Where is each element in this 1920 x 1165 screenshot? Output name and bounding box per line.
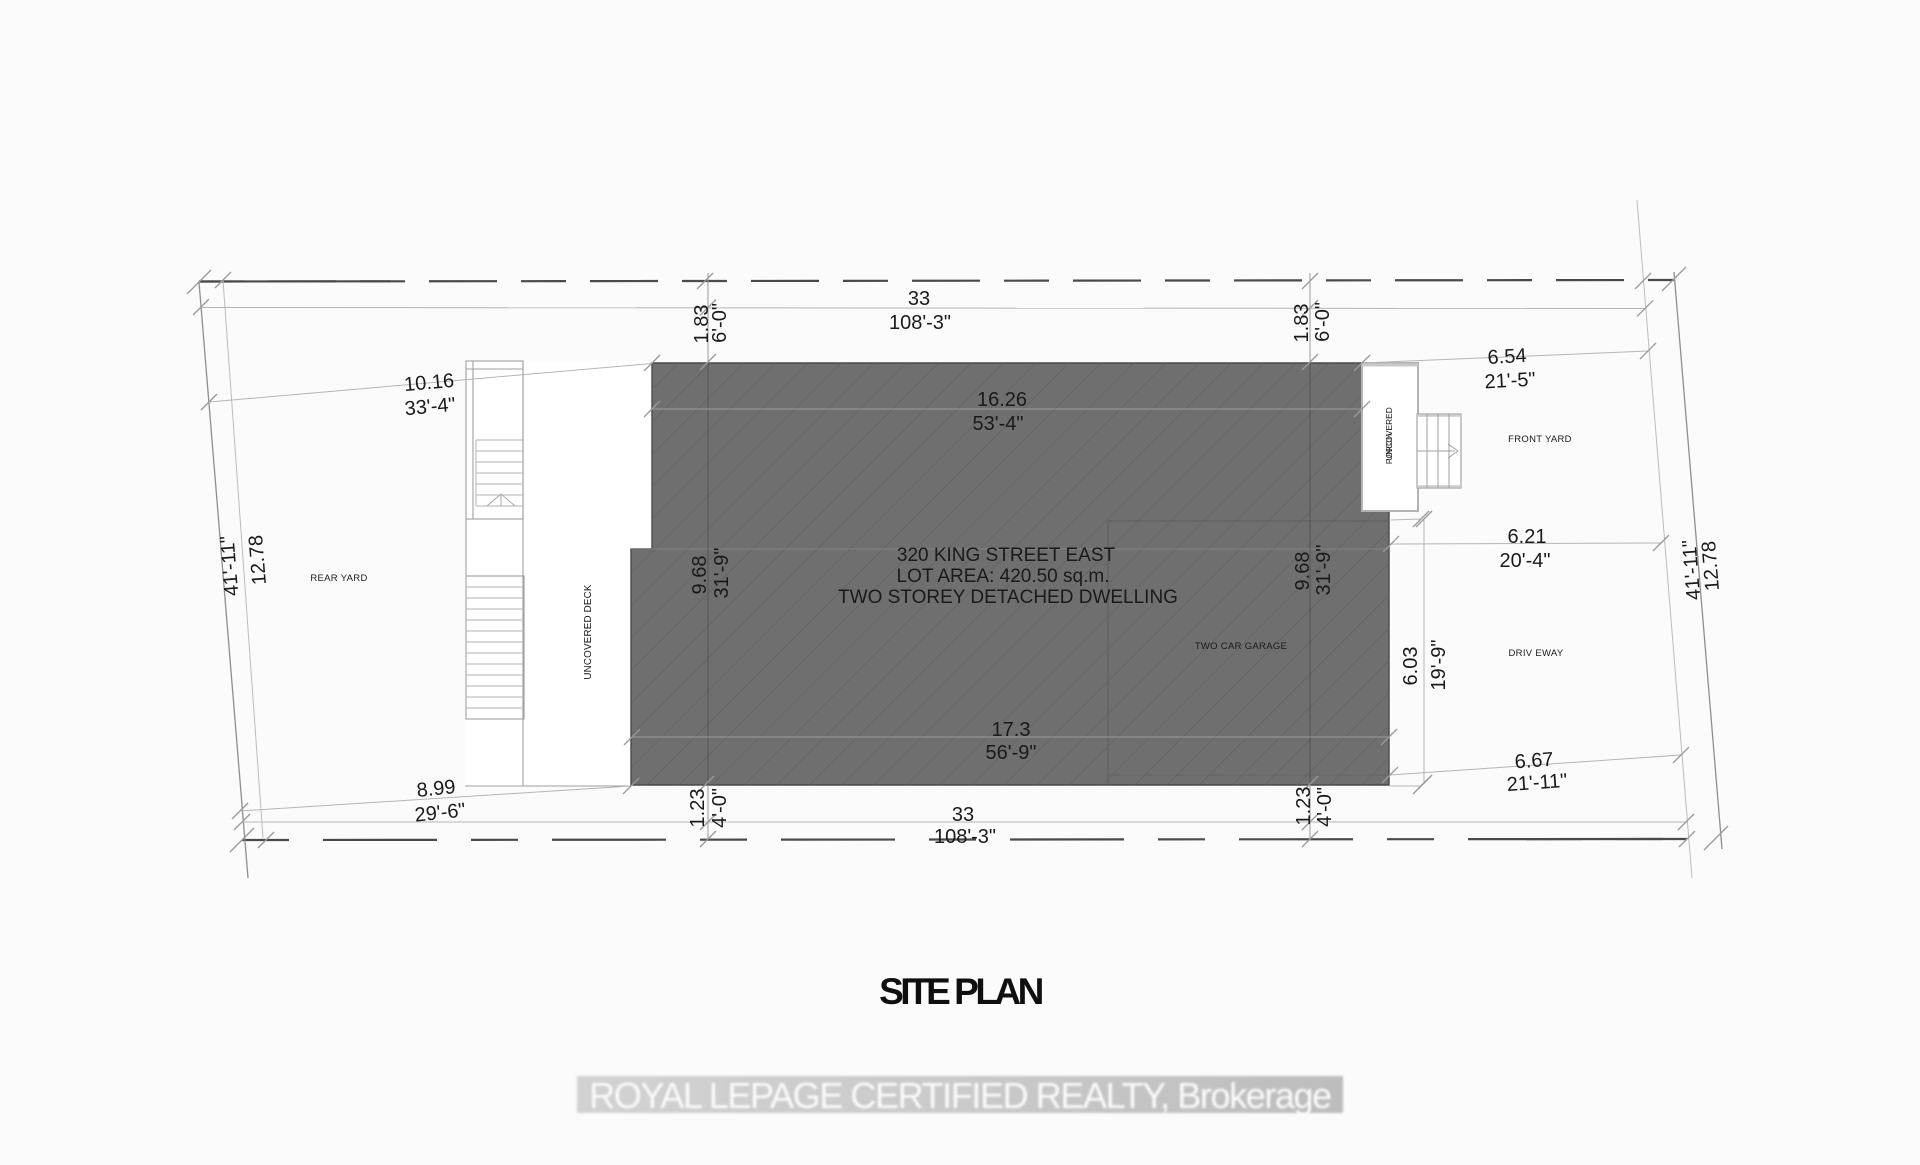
svg-text:53'-4": 53'-4" [973,413,1024,435]
svg-text:16.26: 16.26 [977,389,1027,411]
svg-text:1.83: 1.83 [1291,304,1313,343]
svg-text:9.68: 9.68 [1292,552,1314,591]
svg-text:31'-9": 31'-9" [711,548,733,599]
svg-text:320 KING STREET EAST: 320 KING STREET EAST [897,545,1116,566]
svg-text:108'-3": 108'-3" [934,826,996,848]
svg-text:SITE PLAN: SITE PLAN [879,971,1043,1012]
svg-text:TWO STOREY DETACHED DWELLING: TWO STOREY DETACHED DWELLING [838,587,1178,608]
svg-text:10.16: 10.16 [403,370,455,396]
svg-text:FRONT YARD: FRONT YARD [1508,434,1572,445]
svg-text:6.67: 6.67 [1514,749,1554,774]
svg-text:DRIV EWAY: DRIV EWAY [1509,648,1564,659]
svg-text:8.99: 8.99 [416,776,457,802]
svg-text:12.78: 12.78 [245,534,271,586]
svg-text:17.3: 17.3 [992,719,1031,741]
svg-text:1.23: 1.23 [687,789,709,828]
svg-text:6'-0": 6'-0" [709,303,731,343]
svg-text:33: 33 [908,288,930,310]
svg-text:4'-0": 4'-0" [1314,787,1336,827]
svg-text:UNCOVERED DECK: UNCOVERED DECK [583,584,594,680]
svg-text:108'-3": 108'-3" [889,312,951,334]
svg-text:21'-11": 21'-11" [1506,770,1568,796]
svg-text:4'-0": 4'-0" [709,788,731,828]
svg-text:ROYAL LEPAGE CERTIFIED REALTY,: ROYAL LEPAGE CERTIFIED REALTY, Brokerage [589,1075,1331,1116]
svg-text:33: 33 [952,804,974,826]
svg-text:33'-4": 33'-4" [404,394,457,420]
svg-text:6.54: 6.54 [1487,345,1527,369]
svg-text:6'-0": 6'-0" [1312,302,1334,342]
svg-text:9.68: 9.68 [689,556,711,595]
svg-text:6.21: 6.21 [1508,526,1547,548]
svg-text:1.23: 1.23 [1293,787,1315,826]
svg-text:PORCH: PORCH [1384,434,1394,464]
svg-text:TWO CAR GARAGE: TWO CAR GARAGE [1195,641,1287,652]
svg-text:21'-5": 21'-5" [1484,369,1536,394]
svg-text:6.03: 6.03 [1400,647,1422,686]
svg-text:LOT AREA: 420.50 sq.m.: LOT AREA: 420.50 sq.m. [897,566,1110,587]
svg-text:20'-4": 20'-4" [1500,550,1551,572]
svg-text:19'-9": 19'-9" [1428,640,1450,691]
svg-text:REAR YARD: REAR YARD [310,573,367,584]
svg-text:56'-9": 56'-9" [986,742,1037,764]
svg-text:31'-9": 31'-9" [1313,545,1335,596]
